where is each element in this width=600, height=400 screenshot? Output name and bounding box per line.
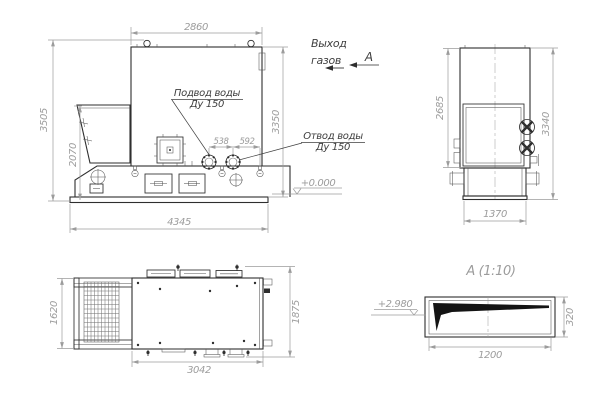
sight-port-left <box>90 169 106 185</box>
front-view-labels: Подвод воды Ду 150 Отвод воды Ду 150 <box>171 88 365 160</box>
left-pipe-stub <box>450 173 464 184</box>
note-gas-outlet-line1: Выход <box>311 37 347 50</box>
dim-front-base-width: 4345 <box>167 217 191 228</box>
dim-plan-width-bottom: 3042 <box>187 365 211 376</box>
plan-view-dimensions: 1620 1875 3042 <box>49 267 302 377</box>
manhole-hatch <box>154 134 186 166</box>
dim-side-height-door: 2685 <box>435 96 446 120</box>
detail-a-title: А (1:10) <box>465 264 515 279</box>
side-view: 2685 3340 1370 <box>435 44 558 225</box>
dim-front-flange-spacing-2: 592 <box>239 137 254 147</box>
fuel-hopper <box>77 105 130 163</box>
water-outlet-flange <box>225 154 241 170</box>
sight-port-right <box>229 173 243 187</box>
rear-door-panel <box>463 104 524 166</box>
dim-detail-height: 320 <box>565 308 576 326</box>
technical-drawing: 2860 3505 2070 3350 538 592 4345 +0.000 … <box>0 0 600 400</box>
dim-front-height-total: 3505 <box>39 108 50 132</box>
side-view-dimensions: 2685 3340 1370 <box>435 48 558 225</box>
furnace-door-right <box>179 174 205 193</box>
drain-fittings <box>132 166 263 177</box>
label-water-outlet-line1: Отвод воды <box>303 131 363 142</box>
water-inlet-flange <box>201 154 217 170</box>
plan-view: 1620 1875 3042 <box>49 265 302 377</box>
label-water-outlet-line2: Ду 150 <box>315 142 350 153</box>
boiler-body-plan <box>132 278 263 349</box>
label-water-inlet-line1: Подвод воды <box>174 88 241 99</box>
gas-outlet-annotation: Выход газов А <box>311 37 379 71</box>
grate-assembly <box>74 278 132 349</box>
drawing-sheet: 2860 3505 2070 3350 538 592 4345 +0.000 … <box>0 0 600 400</box>
furnace-body <box>75 166 290 197</box>
dim-plan-depth-right: 1875 <box>291 300 302 324</box>
lifting-eye-right <box>248 40 254 46</box>
furnace-door-left <box>145 174 172 193</box>
plan-bolt-dots <box>137 282 256 346</box>
lifting-eye-left <box>144 40 150 46</box>
duct-section <box>425 297 555 337</box>
dim-front-hopper-height: 2070 <box>68 143 79 167</box>
detail-view-a: А (1:10) +2.980 320 1200 <box>371 264 576 361</box>
valve-handwheel-upper <box>520 120 535 135</box>
dim-plan-depth-left: 1620 <box>49 301 60 325</box>
dim-detail-width: 1200 <box>478 350 502 361</box>
level-mark-detail: +2.980 <box>378 299 413 310</box>
valve-handwheel-lower <box>520 141 535 156</box>
dim-front-height-body: 3350 <box>271 110 282 134</box>
label-water-inlet-line2: Ду 150 <box>189 99 224 110</box>
side-pipe-stub <box>530 157 537 164</box>
dim-side-width-bottom: 1370 <box>483 209 507 220</box>
base-skid <box>70 197 268 203</box>
dim-front-flange-spacing-1: 538 <box>213 137 229 147</box>
level-mark-zero: +0.000 <box>301 178 336 189</box>
section-marker-a: А <box>364 50 373 64</box>
bottom-fittings <box>146 349 249 357</box>
dim-side-height-total: 3340 <box>541 112 552 136</box>
dim-front-width-top: 2860 <box>184 22 208 33</box>
note-gas-outlet-line2: газов <box>311 54 341 67</box>
right-pipe-stub <box>526 173 539 184</box>
top-hatches <box>147 265 242 278</box>
weld-wedge <box>433 303 549 331</box>
